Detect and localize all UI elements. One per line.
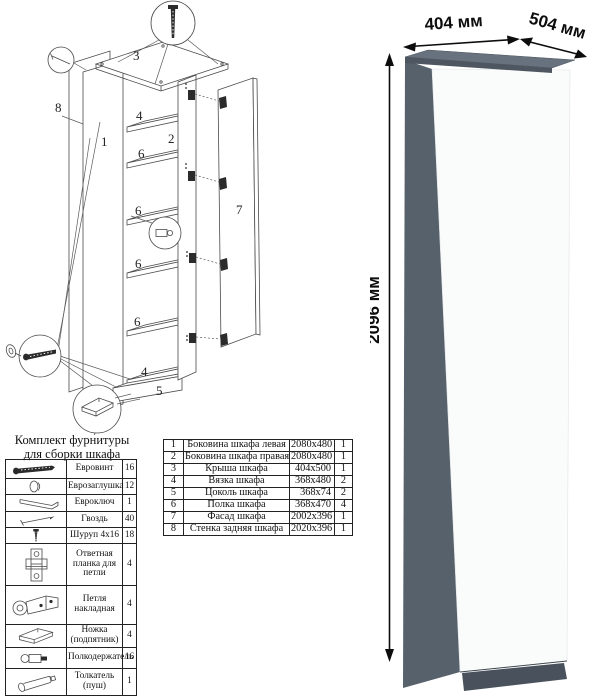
euro-cap-icon xyxy=(8,479,64,494)
table-row: Толкатель (пуш) 1 xyxy=(6,669,137,696)
table-row: Петля накладная 4 xyxy=(6,586,137,625)
hardware-kit-title-line1: Комплект фурнитуры xyxy=(8,433,136,447)
hardware-kit-table: Евровинт 16 Еврозаглушка 12 Евроключ 1 Г… xyxy=(5,459,137,696)
table-row: Гвоздь 40 xyxy=(6,512,137,528)
door-outline xyxy=(195,78,260,347)
push-rod-icon xyxy=(8,670,64,695)
svg-text:6: 6 xyxy=(135,203,142,218)
svg-text:8: 8 xyxy=(55,100,62,115)
table-row: 5Цоколь шкафа368x742 xyxy=(164,488,353,500)
height-dimension-label: 2096 мм xyxy=(370,276,383,344)
euro-key-icon xyxy=(8,495,64,511)
left-side-panel-outline xyxy=(83,60,123,417)
hardware-kit-title: Комплект фурнитуры для сборки шкафа xyxy=(8,433,136,461)
table-row: 8Стенка задняя шкафа2020x3961 xyxy=(164,524,353,536)
table-row: Евровинт 16 xyxy=(6,460,137,479)
width-dimension: 404 мм xyxy=(403,11,520,51)
table-row: 3Крыша шкафа404x5001 xyxy=(164,464,353,476)
shelf-support-icon xyxy=(8,649,64,668)
parts-table: 1Боковина шкафа левая2080x4801 2Боковина… xyxy=(163,439,353,536)
svg-text:5: 5 xyxy=(156,383,163,398)
table-row: 7Фасад шкафа2002x3961 xyxy=(164,512,353,524)
width-dimension-label: 404 мм xyxy=(424,11,483,34)
svg-text:7: 7 xyxy=(236,202,243,217)
table-row: 2Боковина шкафа правая2080x4801 xyxy=(164,452,353,464)
table-row: Полкодержатель 16 xyxy=(6,648,137,669)
svg-text:1: 1 xyxy=(101,134,108,149)
table-row: Ответная планка для петли 4 xyxy=(6,544,137,586)
table-row: Шуруп 4x16 18 xyxy=(6,528,137,544)
svg-text:3: 3 xyxy=(133,48,140,63)
table-row: 1Боковина шкафа левая2080x4801 xyxy=(164,440,353,452)
table-row: Ножка (подпятник) 4 xyxy=(6,625,137,648)
table-row: Еврозаглушка 12 xyxy=(6,479,137,495)
table-row: 6Полка шкафа368x4704 xyxy=(164,500,353,512)
exploded-view-diagram: 3 8 1 4 2 6 6 6 6 4 5 7 xyxy=(0,0,370,435)
svg-text:6: 6 xyxy=(138,146,145,161)
screw-icon xyxy=(8,528,64,543)
depth-dimension-label: 504 мм xyxy=(527,9,588,43)
hinge-icon xyxy=(8,587,64,623)
depth-dimension: 504 мм xyxy=(520,9,588,59)
height-dimension: 2096 мм xyxy=(370,53,394,662)
svg-text:4: 4 xyxy=(141,364,148,379)
euro-screw-icon xyxy=(8,461,64,478)
svg-text:4: 4 xyxy=(136,108,143,123)
assembly-instruction-sheet: { "diagram": { "labels": [ {"t":"3","x":… xyxy=(0,0,601,700)
svg-text:6: 6 xyxy=(135,256,142,271)
euro-screw-key-inset xyxy=(5,335,61,377)
svg-text:6: 6 xyxy=(134,314,141,329)
foot-icon xyxy=(8,625,64,647)
nail-icon xyxy=(8,512,64,527)
cabinet-render: 404 мм 504 мм 2096 мм xyxy=(370,0,601,700)
hinge-plate-icon xyxy=(8,545,64,585)
table-row: 4Вязка шкафа368x4802 xyxy=(164,476,353,488)
table-row: Евроключ 1 xyxy=(6,495,137,512)
svg-text:2: 2 xyxy=(168,131,175,146)
